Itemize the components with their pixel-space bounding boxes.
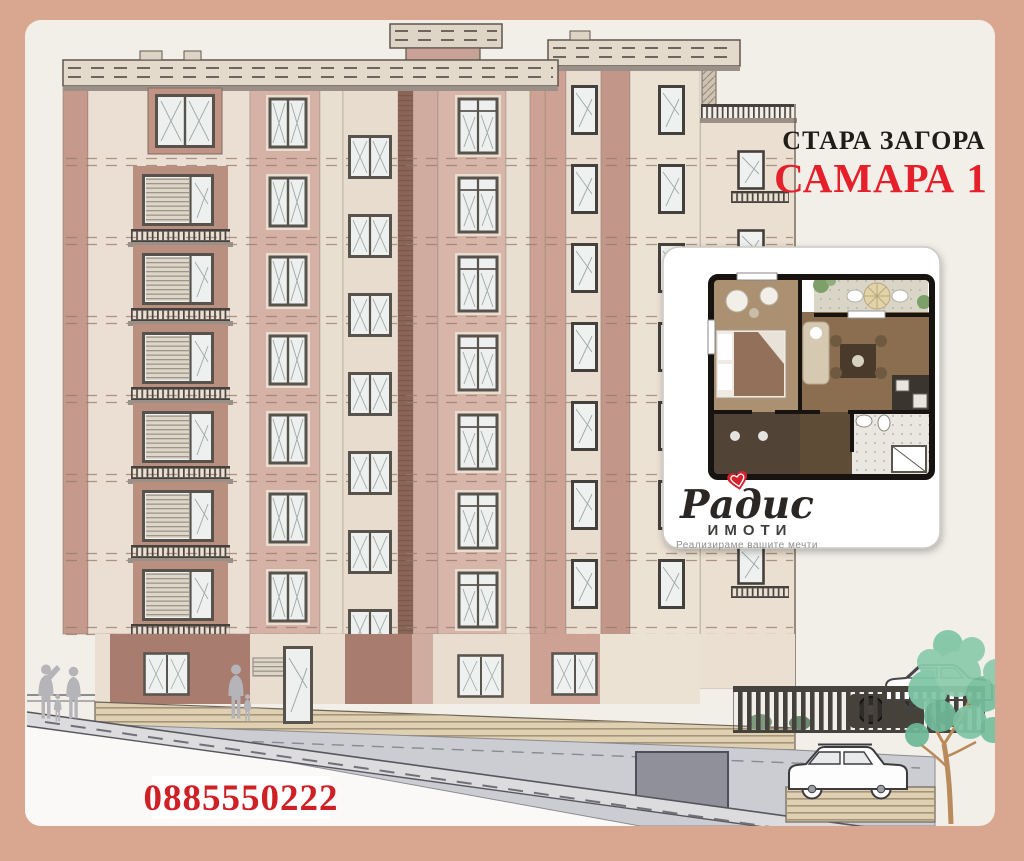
armchair — [760, 287, 778, 305]
balcony-unit — [128, 482, 233, 563]
roof-vent — [140, 51, 162, 60]
balcony-unit — [128, 324, 233, 405]
complex-title: САМАРА 1 — [774, 155, 988, 201]
balcony-unit — [128, 403, 233, 484]
roof-vent — [570, 31, 590, 40]
armchair — [726, 290, 748, 312]
roof-vent — [184, 51, 201, 60]
floorplan-card: Радис ИМОТИ Реализираме вашите мечти — [663, 247, 940, 551]
chimney-cap — [390, 24, 502, 48]
top-floor-window — [148, 88, 222, 154]
floorplan — [708, 273, 932, 477]
window-marker — [737, 273, 777, 280]
header: СТАРА ЗАГОРА САМАРА 1 — [774, 126, 988, 201]
hallway — [800, 412, 852, 475]
poster-canvas: СТАРА ЗАГОРА САМАРА 1 — [0, 0, 1024, 861]
shop-window — [145, 654, 189, 695]
brand-tagline: Реализираме вашите мечти — [676, 540, 818, 551]
window-marker — [708, 320, 715, 354]
balcony-door-marker — [848, 311, 885, 318]
sink — [856, 415, 872, 427]
closet-room — [713, 412, 800, 475]
balcony-unit — [128, 166, 233, 247]
shop-window — [553, 654, 597, 695]
window-column-rose — [266, 95, 310, 625]
balcony-unit — [128, 561, 233, 642]
entrance-door — [285, 648, 312, 723]
shop-window — [459, 656, 503, 697]
phone-number: 0885550222 — [144, 778, 339, 819]
balcony-unit — [128, 245, 233, 326]
real-estate-poster: СТАРА ЗАГОРА САМАРА 1 — [0, 0, 1024, 861]
brand-division: ИМОТИ — [708, 522, 793, 539]
phone-number-box: 0885550222 — [144, 776, 339, 819]
city-title: СТАРА ЗАГОРА — [782, 126, 985, 155]
balcony-column — [128, 166, 233, 642]
toilet — [878, 415, 890, 431]
window-column-tall — [455, 95, 501, 631]
plant — [917, 295, 931, 309]
ground-floor — [95, 634, 795, 704]
